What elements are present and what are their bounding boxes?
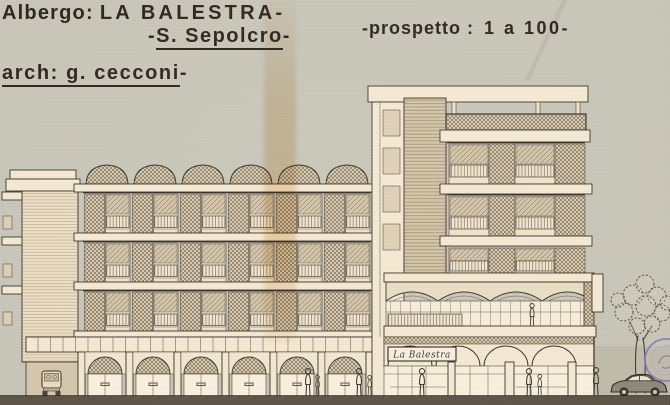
ground-line bbox=[0, 396, 670, 405]
mezzanine-slab-top bbox=[384, 273, 594, 282]
side-balcony-section bbox=[592, 274, 603, 312]
tower-block: La Balestra bbox=[368, 86, 603, 396]
tower-floor-low bbox=[449, 248, 585, 273]
scale-note: -prospetto :1 a 100- bbox=[362, 18, 569, 39]
architect-dash: - bbox=[180, 62, 188, 84]
title-line-hotel: Albergo:LA BALESTRA- bbox=[2, 2, 283, 25]
title-line-location: -S. Sepolcro- bbox=[148, 25, 291, 48]
ground-arcade bbox=[78, 352, 373, 396]
scanned-drawing-sheet: Albergo:LA BALESTRA- -S. Sepolcro- -pros… bbox=[0, 0, 670, 405]
floor-slab bbox=[440, 236, 592, 246]
hotel-label: Albergo: bbox=[2, 2, 94, 24]
scale-dash: - bbox=[562, 18, 569, 38]
location-dash-right: - bbox=[283, 25, 291, 47]
scale-label: -prospetto : bbox=[362, 18, 474, 38]
left-block bbox=[26, 165, 376, 396]
left-section-cut bbox=[2, 170, 80, 397]
transom-band bbox=[26, 337, 376, 352]
location-name: S. Sepolcro bbox=[156, 25, 283, 50]
roof-terrace-railing bbox=[446, 114, 586, 130]
scale-value: 1 a 100 bbox=[484, 18, 562, 38]
tower-storefront bbox=[384, 362, 594, 396]
hotel-name-dash: - bbox=[275, 2, 283, 24]
floor-2-bays bbox=[83, 242, 371, 282]
mezzanine-slab-bottom bbox=[384, 326, 596, 337]
hotel-sign: La Balestra bbox=[388, 347, 456, 361]
tower-floor-mid bbox=[447, 195, 585, 236]
roof-cap-slab bbox=[368, 86, 588, 102]
hotel-sign-text: La Balestra bbox=[392, 351, 451, 361]
architect-credit: arch: g. cecconi- bbox=[2, 62, 188, 85]
hotel-name: LA BALESTRA bbox=[100, 2, 276, 24]
floor-3-bays bbox=[83, 193, 371, 233]
floor-slab bbox=[74, 233, 376, 241]
floor-slab bbox=[74, 282, 376, 290]
roof-slab bbox=[74, 184, 376, 192]
roof-vault-arches bbox=[86, 165, 368, 184]
elevation-drawing: La Balestra bbox=[0, 0, 670, 405]
floor-slab bbox=[74, 331, 376, 337]
tower-floor-top bbox=[447, 143, 585, 184]
location-dash-left: - bbox=[148, 25, 156, 47]
floor-1-bays bbox=[83, 291, 371, 331]
architect-name: arch: g. cecconi bbox=[2, 62, 180, 87]
floor-slab bbox=[440, 184, 592, 194]
terrace-slab bbox=[440, 130, 590, 142]
